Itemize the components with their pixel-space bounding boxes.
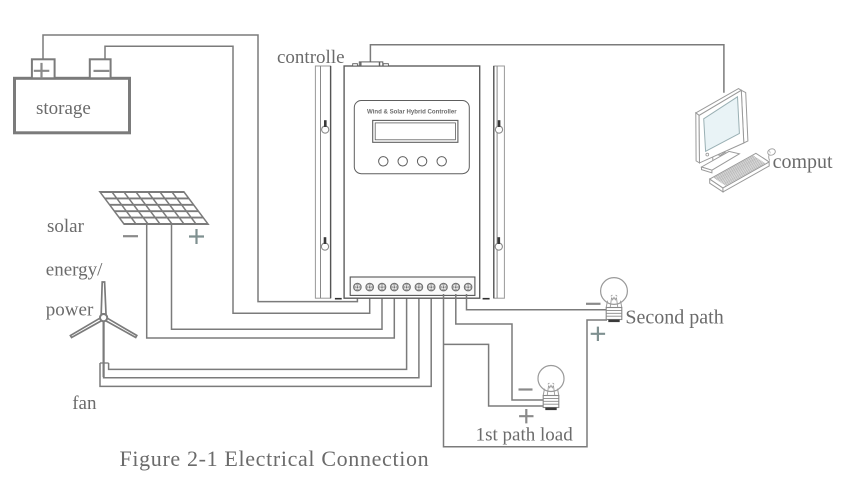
svg-text:Second path: Second path: [625, 307, 723, 329]
svg-text:controlle: controlle: [277, 47, 345, 68]
svg-text:storage: storage: [36, 98, 91, 119]
svg-text:fan: fan: [72, 393, 97, 414]
svg-text:comput: comput: [773, 151, 833, 173]
svg-text:Figure 2-1 Electrical Connecti: Figure 2-1 Electrical Connection: [120, 446, 430, 471]
svg-text:energy/: energy/: [46, 260, 103, 281]
svg-text:power: power: [46, 300, 94, 321]
svg-text:solar: solar: [47, 216, 85, 237]
svg-text:Wind & Solar Hybrid Controller: Wind & Solar Hybrid Controller: [367, 109, 457, 116]
svg-text:1st path load: 1st path load: [476, 425, 574, 446]
